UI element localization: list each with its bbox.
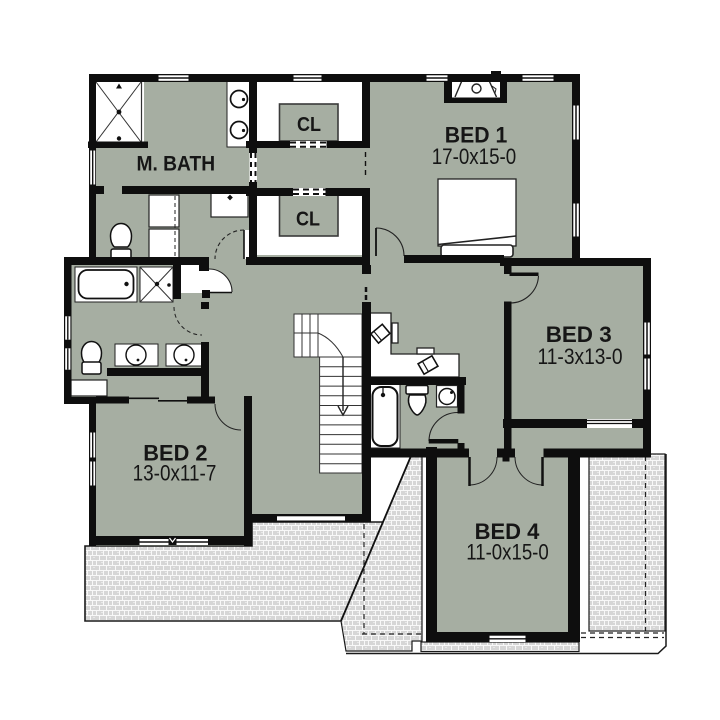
svg-text:13-0x11-7: 13-0x11-7 <box>133 461 217 486</box>
svg-text:11-3x13-0: 11-3x13-0 <box>538 344 623 369</box>
svg-text:M. BATH: M. BATH <box>137 153 216 176</box>
svg-text:CL: CL <box>296 209 320 231</box>
svg-text:11-0x15-0: 11-0x15-0 <box>466 539 549 564</box>
svg-text:17-0x15-0: 17-0x15-0 <box>432 144 517 169</box>
svg-text:CL: CL <box>297 114 321 136</box>
